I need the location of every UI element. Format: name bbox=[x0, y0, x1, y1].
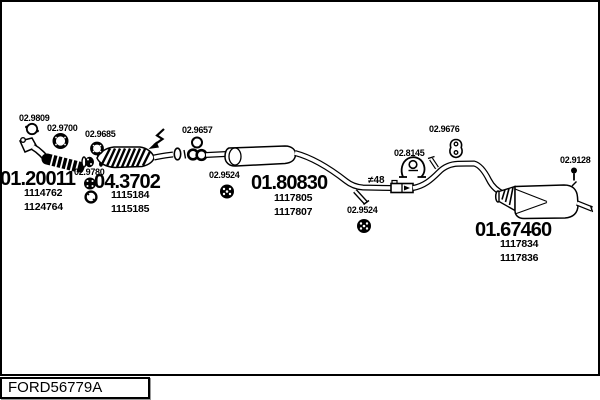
subnumber: 1114762 bbox=[24, 186, 63, 200]
exhaust-diagram-page: { "footer": { "reference": "FORD56779A" … bbox=[0, 0, 600, 400]
hanger-stub bbox=[428, 157, 437, 169]
flow-direction-arrow bbox=[149, 129, 165, 149]
tail-pipe bbox=[577, 203, 593, 212]
subnumber: 1124764 bbox=[24, 200, 63, 214]
subnumber: 1117834 bbox=[500, 237, 538, 251]
subnumber: 1115185 bbox=[111, 202, 149, 216]
gasket-ring-icon bbox=[92, 143, 103, 154]
part-code-02-9524-rear[interactable]: 02.9524 bbox=[347, 205, 377, 215]
part-code-02-9657[interactable]: 02.9657 bbox=[182, 125, 212, 135]
subnumber: 1117836 bbox=[500, 251, 538, 265]
catalytic-converter bbox=[97, 147, 154, 168]
pipe-diameter-annotation: ≠48 bbox=[368, 175, 385, 186]
catalog-reference-box: FORD56779A bbox=[0, 377, 150, 399]
intermediate-pipe bbox=[206, 154, 226, 155]
sleeve-clamp bbox=[391, 181, 413, 193]
part-code-02-9524-front[interactable]: 02.9524 bbox=[209, 170, 239, 180]
clamp-icon-small bbox=[192, 138, 202, 148]
part-subnumbers-01-20011: 1114762 1124764 bbox=[24, 186, 63, 214]
part-subnumbers-01-80830: 1117805 1117807 bbox=[274, 191, 312, 219]
catalog-reference: FORD56779A bbox=[8, 379, 102, 396]
part-code-02-9128[interactable]: 02.9128 bbox=[560, 155, 590, 165]
bracket-clamp-icon bbox=[399, 157, 426, 177]
part-subnumbers-04-3702: 1115184 1115185 bbox=[111, 188, 149, 216]
flange-gasket-icon-2 bbox=[357, 219, 371, 233]
part-code-02-9685[interactable]: 02.9685 bbox=[85, 129, 115, 139]
clamp-ring-icon bbox=[25, 124, 39, 134]
centre-muffler bbox=[225, 146, 296, 166]
subnumber: 1115184 bbox=[111, 188, 149, 202]
part-subnumbers-01-67460: 1117834 1117836 bbox=[500, 237, 538, 265]
part-code-02-9809[interactable]: 02.9809 bbox=[19, 113, 49, 123]
part-code-02-8145[interactable]: 02.8145 bbox=[394, 148, 424, 158]
part-code-02-9676[interactable]: 02.9676 bbox=[429, 124, 459, 134]
rubber-hanger-icon bbox=[450, 140, 462, 158]
part-code-02-9700[interactable]: 02.9700 bbox=[47, 123, 77, 133]
bolt-pin-icon bbox=[571, 168, 577, 181]
flange-gasket-icon-1 bbox=[220, 185, 234, 199]
rear-muffler bbox=[515, 182, 578, 219]
mounting-ring-icon bbox=[54, 135, 67, 148]
subnumber: 1117807 bbox=[274, 205, 312, 219]
cat-outlet-pipe bbox=[154, 148, 186, 160]
subnumber: 1117805 bbox=[274, 191, 312, 205]
part-code-02-9780[interactable]: 02.9780 bbox=[74, 167, 104, 177]
bracket-stub bbox=[355, 191, 369, 205]
pipe-coupling-rings bbox=[188, 150, 206, 160]
